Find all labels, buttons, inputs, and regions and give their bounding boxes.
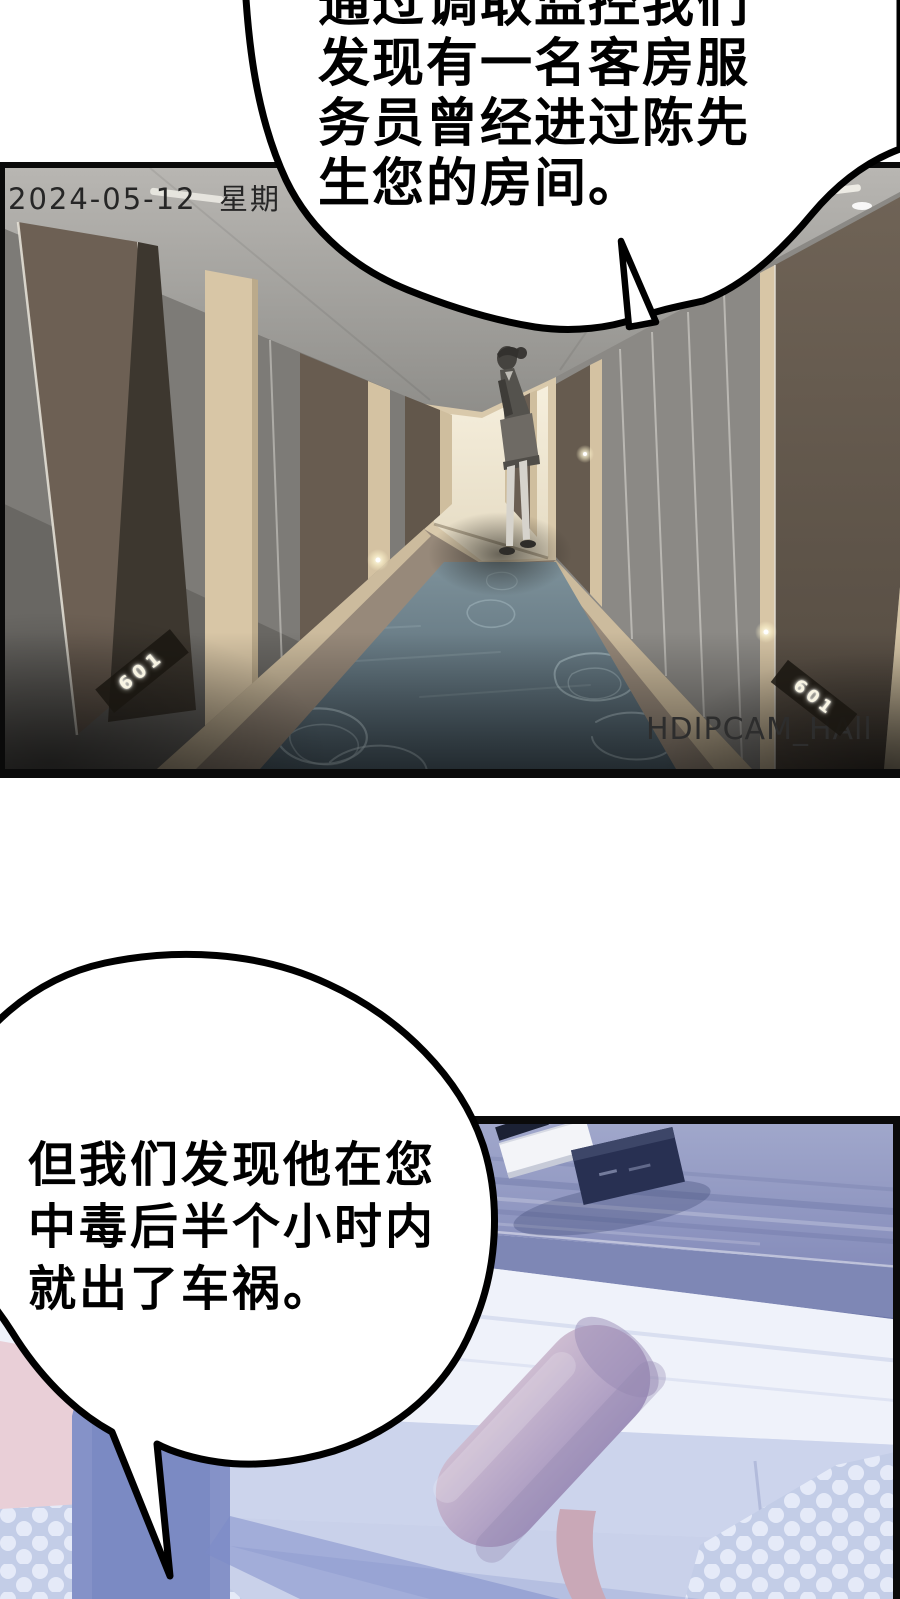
speech-line: 发现有一名客房服 [318,34,750,94]
blue-shadow-figure [72,1383,230,1599]
speech-line: 但我们发现他在您 [28,1134,436,1196]
cctv-timestamp: 2024-05-12 星期 [8,176,281,218]
comic-page: 2024-05-12 星期 HDIPCAM_HAll 601 601 [0,0,900,1599]
speech-line: 通过调取监控我们 [318,0,750,34]
speech-line: 生您的房间。 [318,154,750,214]
speech-text-bottom: 但我们发现他在您 中毒后半个小时内 就出了车祸。 [28,1134,436,1320]
speech-line: 中毒后半个小时内 [28,1196,436,1258]
cctv-corridor-panel: 2024-05-12 星期 HDIPCAM_HAll 601 601 [0,162,900,778]
speech-text-top: 通过调取监控我们 发现有一名客房服 务员曾经进过陈先 生您的房间。 [318,0,750,214]
speech-line: 务员曾经进过陈先 [318,94,750,154]
speech-line: 就出了车祸。 [28,1258,436,1320]
